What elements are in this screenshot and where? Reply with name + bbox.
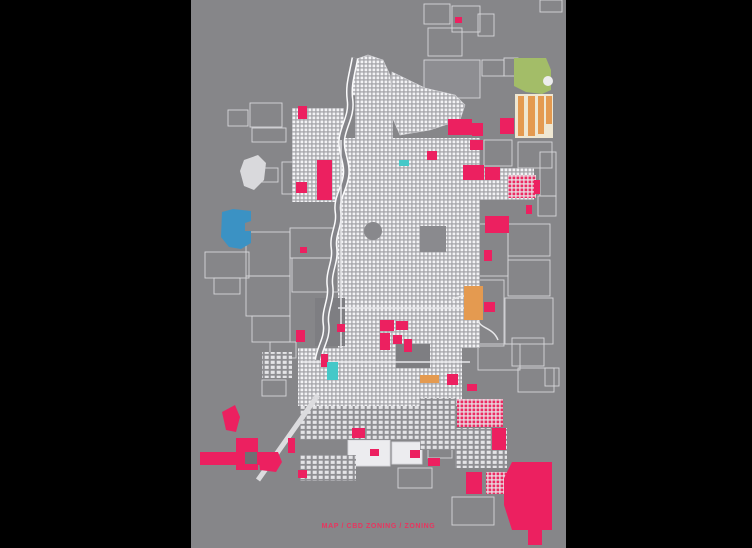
zone-orange [538,96,544,134]
zone-pink [337,324,345,332]
pink-parcel-grid [457,399,503,427]
gray-zone [364,222,382,240]
zone-orange [420,375,439,383]
zone-teal [327,362,338,380]
zone-pink [352,428,365,438]
zone-pink [447,374,458,385]
urban-fabric-block [420,398,456,450]
zone-pink [448,119,472,135]
zone-orange [464,286,483,320]
urban-fabric-block [355,93,393,141]
zone-pink [484,250,492,261]
zone-pink [410,450,420,458]
zone-pink [370,449,379,456]
zone-pink [463,165,484,180]
zone-orange [528,96,535,136]
zone-pink [500,118,514,134]
zone-pink [466,472,482,494]
zone-pink [404,339,412,352]
zone-pink [300,247,307,253]
zone-pink [296,182,307,193]
zone-pink [380,320,394,331]
gray-zone [396,344,430,368]
zone-pink [484,302,495,312]
zone-pink [534,180,540,194]
zoning-map [0,0,752,548]
zone-pink [298,470,307,478]
zone-orange [518,96,524,136]
zone-pink [393,335,402,344]
zone-teal [399,160,409,166]
map-caption: MAP / CBD ZONING / ZONING [191,523,566,530]
zone-pink [467,384,477,391]
urban-fabric-block [338,138,480,348]
map-overlay [543,76,553,86]
pink-parcel-grid [508,175,536,198]
zone-pink [317,160,332,200]
zone-pink [492,428,506,450]
map-viewport: MAP / CBD ZONING / ZONING [0,0,752,548]
urban-fabric-block [300,455,356,481]
zone-orange [546,96,552,124]
zone-pink [428,458,440,466]
zone-pink [485,216,509,233]
zone-green [514,58,551,94]
zone-pink [298,106,307,119]
zone-pink [455,17,462,23]
zone-pink [321,354,328,367]
zone-pink [380,333,390,350]
zone-pink [472,123,483,136]
map-overlay [245,452,257,464]
zone-pink [427,151,437,160]
zone-pink [396,321,408,330]
zone-pink [296,330,305,342]
gray-zone [420,226,446,252]
urban-fabric-block [262,352,292,378]
zone-pink [288,438,295,453]
zone-pink [485,167,500,180]
zone-pink [470,140,483,150]
zone-pink [526,205,532,214]
